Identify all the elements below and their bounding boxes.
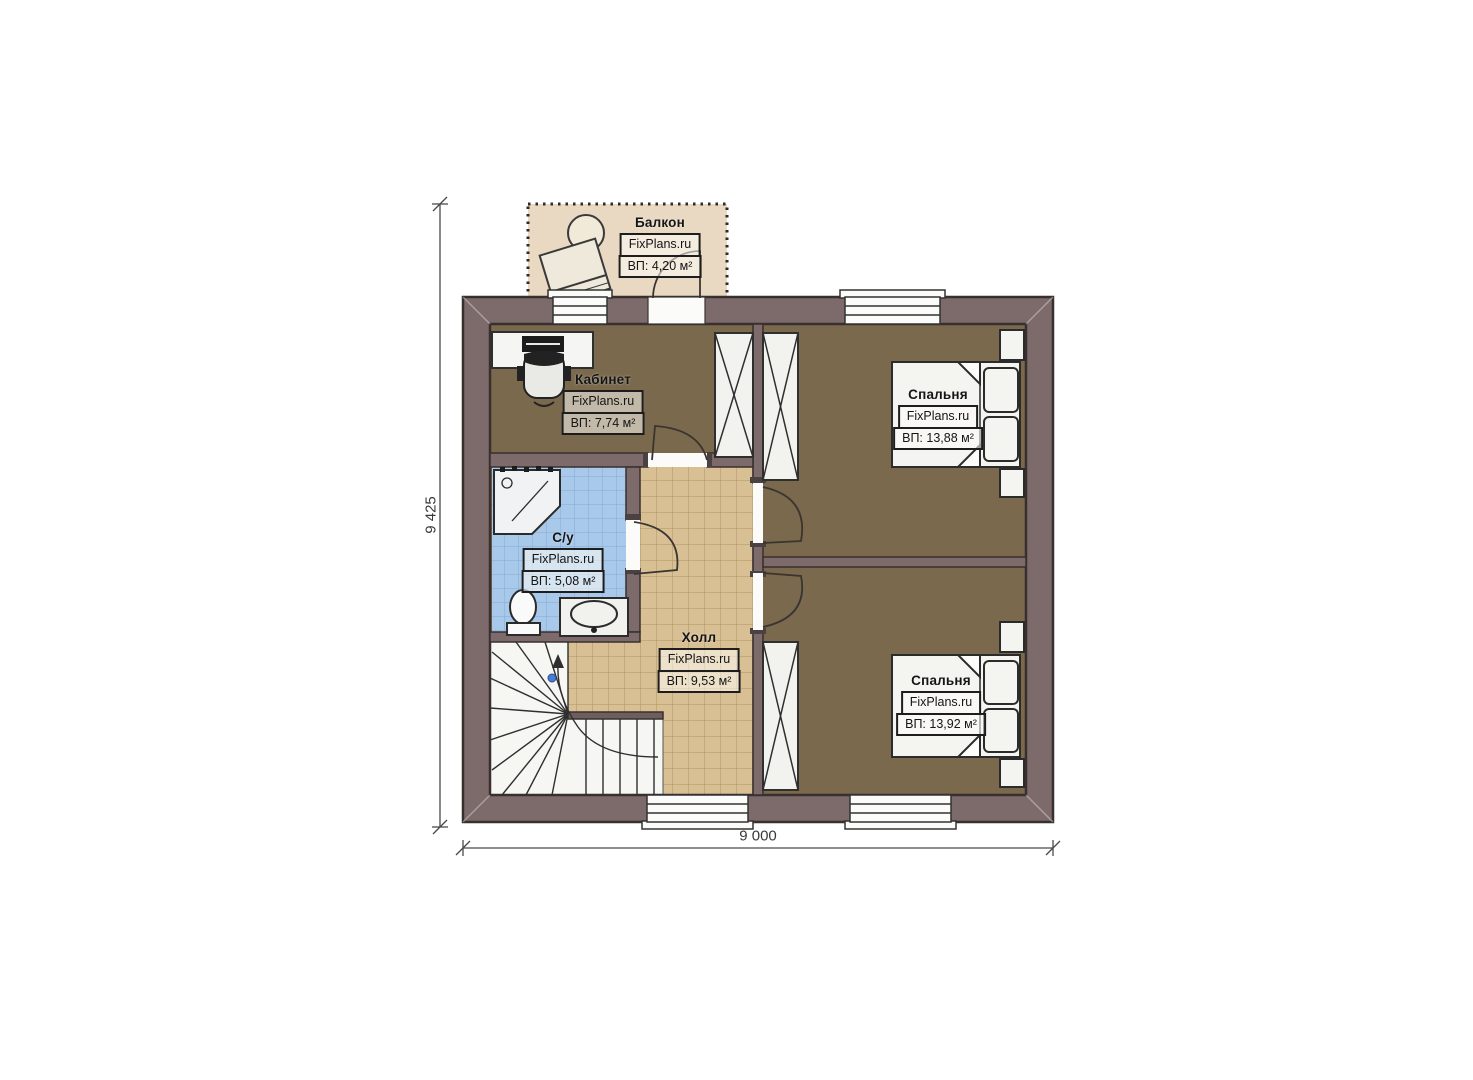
- office-wardrobe-icon: [715, 333, 753, 457]
- bedroom2-wardrobe-icon: [763, 642, 798, 790]
- hall-window: [642, 795, 753, 829]
- bedroom1-wardrobe-icon: [763, 333, 798, 480]
- dimension-height-label: 9 425: [423, 496, 440, 534]
- bedroom2-window: [845, 795, 956, 829]
- floor-plan-canvas: Балкон FixPlans.ru ВП: 4,20 м² Кабинет F…: [0, 0, 1473, 1080]
- office-window: [548, 290, 612, 324]
- dimension-width-label: 9 000: [739, 828, 777, 845]
- bedroom1-window: [840, 290, 945, 324]
- floor-plan-drawing: [0, 0, 1473, 1080]
- sink-icon: [560, 598, 628, 636]
- stairs-node-dot: [548, 674, 556, 682]
- printer-icon: [522, 336, 564, 352]
